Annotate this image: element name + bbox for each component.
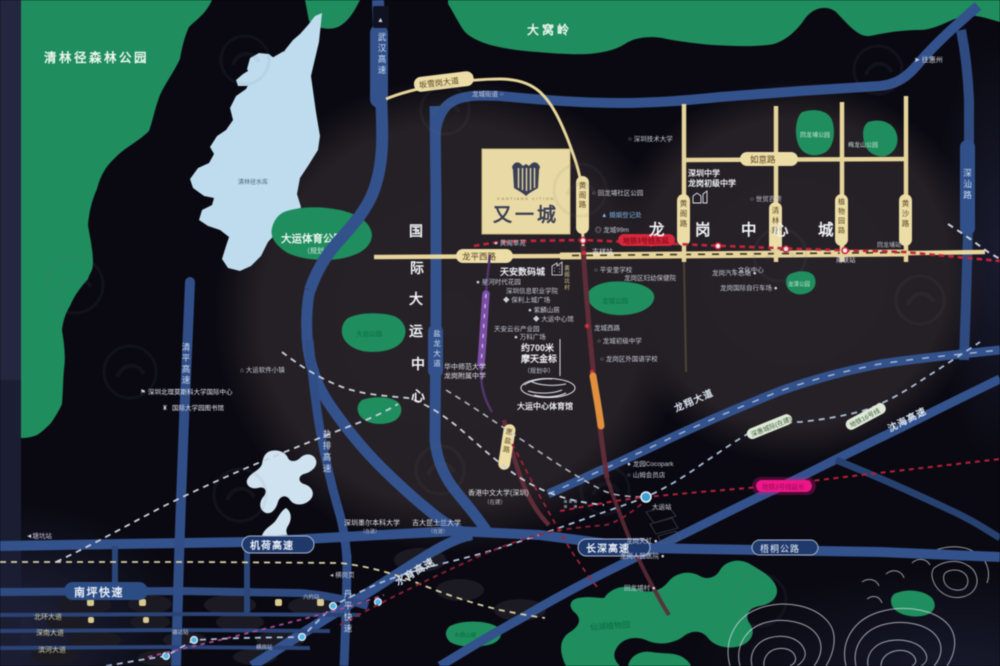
svg-text:龙平西路: 龙平西路 xyxy=(462,252,497,262)
svg-text:塘坑站: 塘坑站 xyxy=(172,628,189,636)
svg-text:清林径水库: 清林径水库 xyxy=(238,178,268,186)
svg-text:深南大道: 深南大道 xyxy=(36,628,64,637)
svg-text:盐排高速: 盐排高速 xyxy=(323,429,332,474)
svg-text:黄沙路: 黄沙路 xyxy=(902,198,910,228)
svg-text:龙城公园: 龙城公园 xyxy=(602,296,628,305)
svg-text:● 星河时代花园: ● 星河时代花园 xyxy=(476,277,521,286)
svg-text:国际大学园图书馆: 国际大学园图书馆 xyxy=(172,403,225,412)
svg-text:约700米: 约700米 xyxy=(521,342,555,353)
svg-text:黄阁路: 黄阁路 xyxy=(680,198,688,228)
svg-text:大运公园: 大运公园 xyxy=(356,329,382,338)
svg-text:⌂ 大运软件小镇: ⌂ 大运软件小镇 xyxy=(240,365,285,374)
svg-text:龙岗天虹 ●: 龙岗天虹 ● xyxy=(626,536,658,545)
svg-text:○ 龙城初级中学: ○ 龙城初级中学 xyxy=(597,336,642,345)
svg-text:○ 深圳技术大学: ○ 深圳技术大学 xyxy=(628,134,673,143)
svg-text:清平高速: 清平高速 xyxy=(182,342,191,385)
svg-text:○ 回龙埔社区公园: ○ 回龙埔社区公园 xyxy=(592,188,643,197)
svg-text:龙岗初级中学: 龙岗初级中学 xyxy=(687,178,736,188)
svg-text:龙潭公园: 龙潭公园 xyxy=(788,280,811,288)
svg-text:机荷高速: 机荷高速 xyxy=(250,539,294,552)
svg-text:木棉山塘: 木棉山塘 xyxy=(454,631,477,639)
svg-text:南坪快速: 南坪快速 xyxy=(74,585,124,599)
svg-text:回龙埔村 ●: 回龙埔村 ● xyxy=(624,583,656,592)
svg-text:♜: ♜ xyxy=(162,404,168,412)
svg-text:回龙埔公园: 回龙埔公园 xyxy=(800,131,830,139)
svg-text:际: 际 xyxy=(410,260,424,276)
svg-text:龙城西路: 龙城西路 xyxy=(594,323,621,332)
svg-text:深圳墨尔本科大学: 深圳墨尔本科大学 xyxy=(344,518,400,527)
svg-text:六约站: 六约站 xyxy=(303,593,320,601)
svg-text:横岗站: 横岗站 xyxy=(256,643,273,651)
svg-text:吉大昆士兰大学: 吉大昆士兰大学 xyxy=(412,518,461,527)
svg-text:又一城: 又一城 xyxy=(493,203,559,226)
svg-text:深汕路: 深汕路 xyxy=(963,168,972,200)
svg-text:吉祥站: 吉祥站 xyxy=(592,247,613,256)
svg-text:龙岗人民医院 ●: 龙岗人民医院 ● xyxy=(620,551,665,560)
svg-text:深圳信息职业学院: 深圳信息职业学院 xyxy=(506,286,559,295)
svg-text:城: 城 xyxy=(818,221,834,239)
svg-text:如意路: 如意路 xyxy=(750,155,776,165)
svg-text:（在建）: （在建） xyxy=(360,528,380,535)
svg-text:中: 中 xyxy=(741,220,757,239)
svg-text:龙: 龙 xyxy=(648,220,665,239)
svg-text:华中师范大学: 华中师范大学 xyxy=(444,362,486,371)
svg-text:◂ 横岗页: ◂ 横岗页 xyxy=(330,570,355,579)
svg-text:深圳北理莫斯科大学国际中心: 深圳北理莫斯科大学国际中心 xyxy=(148,387,233,396)
svg-text:（在建）: （在建） xyxy=(484,498,506,506)
svg-text:龙岗区妇幼保健院: 龙岗区妇幼保健院 xyxy=(624,273,677,282)
svg-text:心: 心 xyxy=(411,388,425,404)
svg-text:深圳中学: 深圳中学 xyxy=(688,168,720,178)
svg-text:国: 国 xyxy=(409,223,423,239)
svg-text:滨河大道: 滨河大道 xyxy=(38,645,66,654)
svg-text:KANTIANS CITION: KANTIANS CITION xyxy=(497,196,554,201)
svg-text:地铁3号线延长: 地铁3号线延长 xyxy=(762,482,805,491)
svg-text:中: 中 xyxy=(411,356,425,372)
svg-text:天安数码城: 天安数码城 xyxy=(500,266,545,277)
svg-text:● 龙园Cocopark: ● 龙园Cocopark xyxy=(627,459,674,468)
svg-text:回龙埔站: 回龙埔站 xyxy=(877,241,901,249)
svg-text:大: 大 xyxy=(409,291,423,307)
svg-text:（规划中）: （规划中） xyxy=(524,367,554,375)
svg-text:清林径森林公园: 清林径森林公园 xyxy=(44,50,149,65)
svg-text:南联站: 南联站 xyxy=(836,255,856,264)
svg-text:梅龙山公园: 梅龙山公园 xyxy=(848,141,878,149)
svg-text:◎ 龙城99m: ◎ 龙城99m xyxy=(595,225,629,234)
svg-text:丹平快速: 丹平快速 xyxy=(344,589,353,634)
svg-text:天安云谷产业园: 天安云谷产业园 xyxy=(494,324,540,333)
svg-text:大窝岭: 大窝岭 xyxy=(527,22,572,37)
svg-text:龙城街道 ○: 龙城街道 ○ xyxy=(472,89,504,98)
svg-text:➤ 往惠州: ➤ 往惠州 xyxy=(914,55,943,64)
svg-text:武汉高速: 武汉高速 xyxy=(378,32,387,75)
svg-text:◆ 大运中心馆: ◆ 大运中心馆 xyxy=(533,314,574,323)
svg-text:● 万科广场: ● 万科广场 xyxy=(514,332,546,341)
svg-text:○ 山姆会员店: ○ 山姆会员店 xyxy=(627,470,666,479)
svg-text:● 黄阁翠苑: ● 黄阁翠苑 xyxy=(494,238,526,247)
svg-text:岗: 岗 xyxy=(695,221,711,239)
svg-text:摩天金标: 摩天金标 xyxy=(521,353,557,364)
svg-text:▲: ▲ xyxy=(377,17,384,24)
svg-text:香港中文大学(深圳): 香港中文大学(深圳) xyxy=(468,488,529,497)
svg-text:运: 运 xyxy=(409,323,423,339)
svg-text:○ 世贸百货: ○ 世贸百货 xyxy=(750,194,782,203)
svg-text:● 紫麟山居: ● 紫麟山居 xyxy=(528,305,560,314)
svg-text:（在建）: （在建） xyxy=(428,528,448,535)
svg-text:○ 平安里学校: ○ 平安里学校 xyxy=(594,265,633,274)
svg-text:梧桐公路: 梧桐公路 xyxy=(760,543,800,554)
svg-text:○ 龙岗区外国语学校: ○ 龙岗区外国语学校 xyxy=(600,354,658,363)
svg-text:黄阁坑村: 黄阁坑村 xyxy=(564,264,570,292)
svg-text:◆ 保利上城广场: ◆ 保利上城广场 xyxy=(503,295,551,304)
svg-text:北环大道: 北环大道 xyxy=(34,612,62,621)
svg-text:大运中心体育馆: 大运中心体育馆 xyxy=(517,401,573,411)
svg-text:龙岗附属中学: 龙岗附属中学 xyxy=(444,371,486,380)
svg-text:▲ 婚姻登记处: ▲ 婚姻登记处 xyxy=(601,210,642,219)
svg-text:龙岗国际自行车场 ●: 龙岗国际自行车场 ● xyxy=(720,283,778,292)
svg-text:◄塘坑站: ◄塘坑站 xyxy=(26,531,52,540)
